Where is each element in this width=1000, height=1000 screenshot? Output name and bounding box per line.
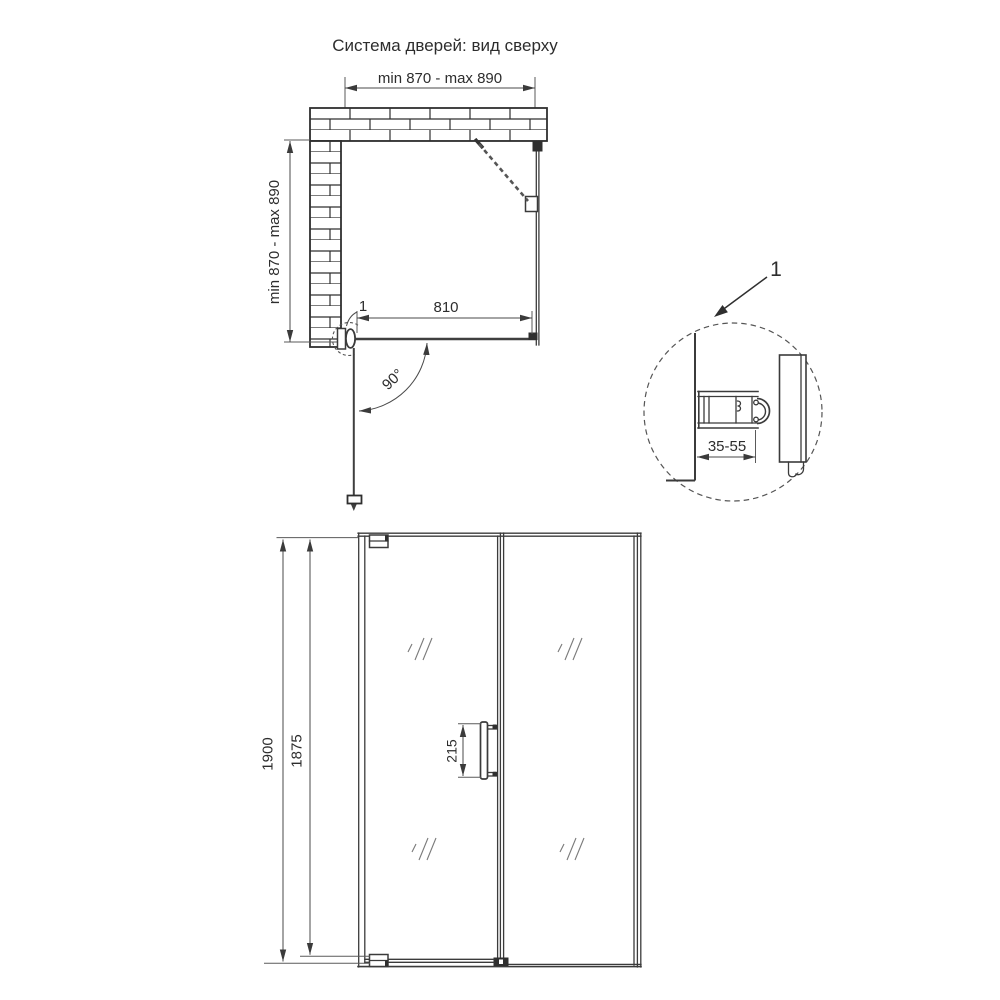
handle-dimension-label: 215 <box>444 739 460 763</box>
glass-mark <box>560 838 584 860</box>
door-magnet-bracket <box>529 333 538 341</box>
wall-profile-top-view <box>338 329 346 350</box>
total-height-dimension-label: 1900 <box>260 737 277 770</box>
door-open-arrow <box>351 504 357 512</box>
front-frame <box>358 533 641 967</box>
left-brick-wall <box>310 141 341 347</box>
glass-bottom-clip <box>789 462 797 477</box>
top-view: Система дверей: вид сверху min 870 - max… <box>266 36 558 511</box>
adjustment-dimension: 35-55 <box>697 430 756 463</box>
door-handle <box>481 722 498 779</box>
front-view: 215 1900 1875 <box>260 533 642 967</box>
door-open-line <box>348 348 362 511</box>
detail-view: 1 <box>644 258 822 501</box>
glass-mark <box>412 838 436 860</box>
detail-glass-hook <box>754 399 770 424</box>
fixed-panel-top-view <box>526 141 543 346</box>
profile-clip <box>738 401 741 411</box>
support-bar <box>475 139 528 201</box>
drawing-title: Система дверей: вид сверху <box>332 36 558 55</box>
top-brick-wall <box>310 108 547 141</box>
bottom-hinge <box>370 955 389 967</box>
door-closed-line <box>353 333 538 341</box>
adjustment-dimension-label: 35-55 <box>708 438 746 455</box>
detail-number-label: 1 <box>770 258 782 281</box>
detail-marker-label: 1 <box>359 298 367 315</box>
detail-wall <box>666 333 695 481</box>
height-dimensions: 1900 1875 <box>260 538 371 964</box>
panel-wall-bracket <box>533 141 543 152</box>
technical-drawing: Система дверей: вид сверху min 870 - max… <box>0 0 1000 1000</box>
detail-glass-panel <box>780 355 807 477</box>
glass-mark <box>558 638 582 660</box>
top-width-dimension-label: min 870 - max 890 <box>378 70 502 87</box>
detail-wall-profile <box>698 392 758 429</box>
center-divider-profile <box>494 533 509 966</box>
glass-marks <box>408 638 584 860</box>
drawing-canvas: Система дверей: вид сверху min 870 - max… <box>0 0 1000 1000</box>
door-width-dimension-label: 810 <box>433 299 458 316</box>
glass-mark <box>408 638 432 660</box>
glass-height-dimension-label: 1875 <box>289 734 306 767</box>
hinge-pivot <box>346 329 355 348</box>
handle-dimension: 215 <box>444 724 482 777</box>
door-handle-top-view <box>348 496 362 504</box>
top-hinge <box>370 535 389 548</box>
left-depth-dimension-label: min 870 - max 890 <box>266 180 283 304</box>
detail-callout: 1 <box>714 258 782 317</box>
door-width-dimension: 810 <box>357 299 532 334</box>
swing-arc: 90° <box>359 343 427 411</box>
swing-angle-label: 90° <box>379 366 407 394</box>
